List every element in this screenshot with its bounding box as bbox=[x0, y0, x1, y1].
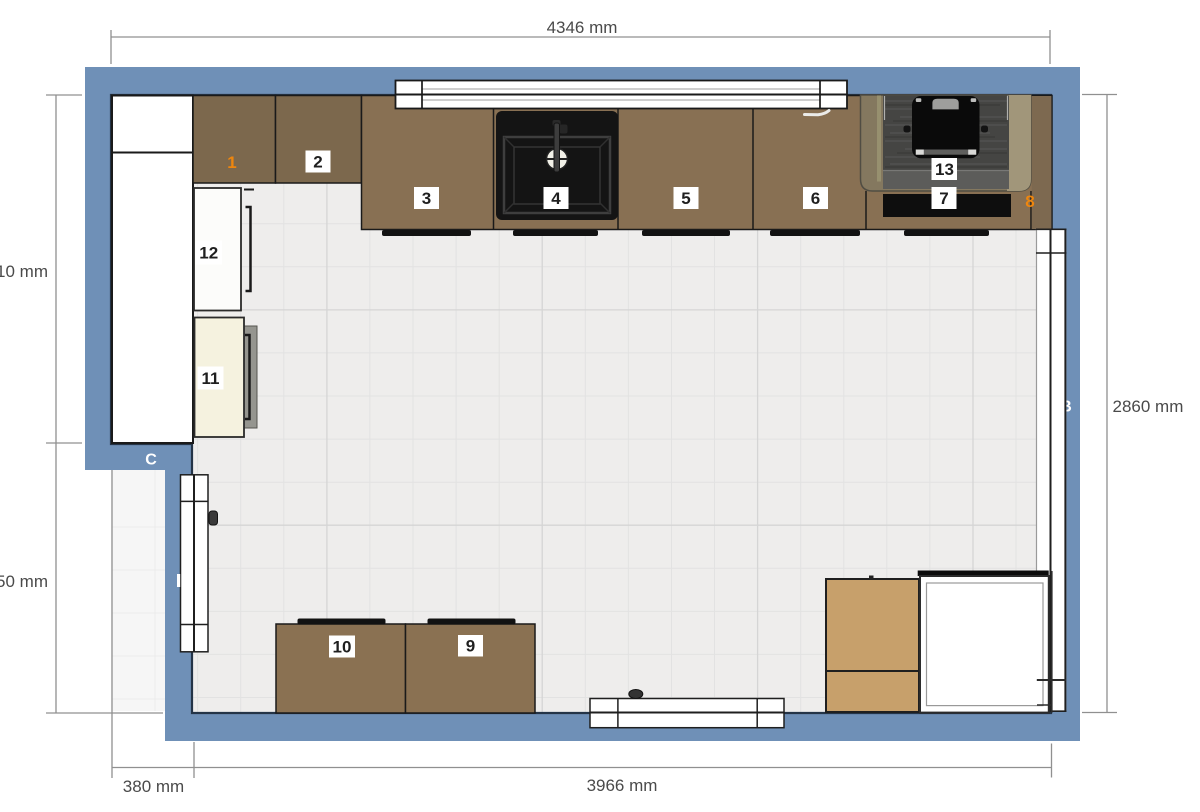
svg-text:2: 2 bbox=[313, 153, 322, 172]
svg-text:3: 3 bbox=[422, 189, 431, 208]
svg-text:380 mm: 380 mm bbox=[123, 777, 184, 796]
svg-text:8: 8 bbox=[1025, 192, 1034, 211]
svg-text:11: 11 bbox=[202, 369, 220, 388]
svg-text:4346 mm: 4346 mm bbox=[547, 18, 618, 37]
svg-text:12: 12 bbox=[199, 244, 218, 263]
svg-text:13: 13 bbox=[935, 160, 954, 179]
svg-text:1410 mm: 1410 mm bbox=[0, 262, 48, 281]
svg-text:7: 7 bbox=[939, 189, 948, 208]
svg-text:C: C bbox=[145, 452, 157, 469]
svg-text:6: 6 bbox=[811, 189, 820, 208]
svg-text:9: 9 bbox=[466, 637, 475, 656]
svg-text:1450 mm: 1450 mm bbox=[0, 572, 48, 591]
svg-text:1: 1 bbox=[227, 153, 236, 172]
svg-text:3966 mm: 3966 mm bbox=[587, 776, 658, 795]
svg-text:4: 4 bbox=[551, 189, 561, 208]
svg-text:5: 5 bbox=[681, 189, 690, 208]
svg-text:10: 10 bbox=[333, 638, 352, 657]
svg-text:2860 mm: 2860 mm bbox=[1113, 397, 1184, 416]
